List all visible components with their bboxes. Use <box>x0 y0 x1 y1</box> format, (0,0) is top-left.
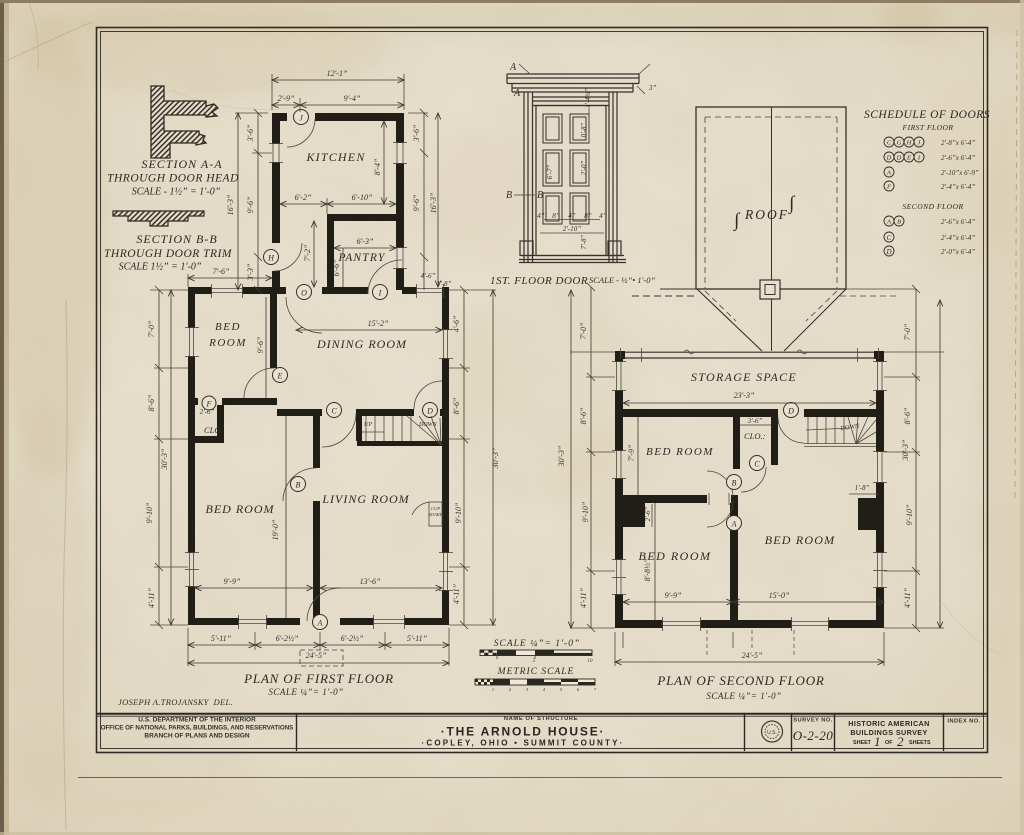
svg-text:A: A <box>317 619 323 628</box>
svg-text:4”: 4” <box>568 212 576 220</box>
svg-text:30'-3”: 30'-3” <box>160 448 169 470</box>
svg-text:1: 1 <box>874 734 881 749</box>
svg-text:A: A <box>731 520 737 529</box>
svg-text:6'-2½”: 6'-2½” <box>276 634 299 643</box>
svg-text:4”: 4” <box>599 212 607 220</box>
svg-text:2'-9”: 2'-9” <box>278 94 295 103</box>
svg-text:6'-2½”: 6'-2½” <box>341 634 364 643</box>
svg-text:6'-10”: 6'-10” <box>352 193 373 202</box>
svg-text:4'-6”: 4'-6” <box>452 315 461 332</box>
svg-text:3'-6”: 3'-6” <box>412 124 421 142</box>
svg-text:CLO.:: CLO.: <box>744 431 766 441</box>
svg-text:CUP: CUP <box>431 506 440 511</box>
svg-text:16'-3”: 16'-3” <box>429 192 438 213</box>
svg-text:2'-0”x 6'-4”: 2'-0”x 6'-4” <box>941 248 975 256</box>
svg-text:2'-4”x 6'-4”: 2'-4”x 6'-4” <box>941 183 975 191</box>
svg-text:2'-6”: 2'-6” <box>200 408 215 416</box>
svg-text:23'-3”: 23'-3” <box>734 391 755 400</box>
svg-text:2'-4”x 6'-4”: 2'-4”x 6'-4” <box>941 234 975 242</box>
svg-text:INDEX NO.: INDEX NO. <box>947 719 980 725</box>
svg-text:FIRST FLOOR: FIRST FLOOR <box>902 123 954 132</box>
svg-text:BED: BED <box>215 321 241 333</box>
svg-text:8”: 8” <box>584 212 592 220</box>
svg-text:C: C <box>887 140 892 147</box>
svg-text:THROUGH DOOR TRIM: THROUGH DOOR TRIM <box>104 248 233 260</box>
svg-text:C: C <box>331 407 337 416</box>
svg-text:8'-8½”: 8'-8½” <box>643 558 652 581</box>
svg-text:OF: OF <box>885 740 893 746</box>
svg-text:BUILDINGS SURVEY: BUILDINGS SURVEY <box>850 728 927 737</box>
svg-text:6'-6”: 6'-6” <box>332 259 341 276</box>
svg-text:SCALE ¼”= 1'-0”: SCALE ¼”= 1'-0” <box>268 687 343 697</box>
svg-text:9'-10”: 9'-10” <box>581 501 590 522</box>
svg-text:DINING ROOM: DINING ROOM <box>316 337 407 351</box>
svg-text:SCALE ¼”= 1'-0”: SCALE ¼”= 1'-0” <box>494 638 581 649</box>
svg-text:3'-3”: 3'-3” <box>246 263 255 281</box>
svg-text:·THE ARNOLD HOUSE·: ·THE ARNOLD HOUSE· <box>441 725 606 739</box>
svg-text:ROOM: ROOM <box>208 337 247 349</box>
svg-text:UP: UP <box>364 422 372 428</box>
svg-text:3”: 3” <box>648 84 657 92</box>
svg-text:D: D <box>886 155 892 162</box>
svg-text:J: J <box>299 114 303 123</box>
svg-text:B: B <box>732 479 737 488</box>
svg-text:A: A <box>509 62 517 73</box>
svg-text:STORAGE SPACE: STORAGE SPACE <box>691 370 797 384</box>
svg-text:U.S. DEPARTMENT OF THE INTERIO: U.S. DEPARTMENT OF THE INTERIOR <box>138 717 256 724</box>
svg-text:9'-10”: 9'-10” <box>145 502 154 523</box>
svg-text:·COPLEY, OHIO • SUMMIT COUNTY·: ·COPLEY, OHIO • SUMMIT COUNTY· <box>421 739 624 748</box>
svg-text:15'-2”: 15'-2” <box>368 319 389 328</box>
svg-text:4'-11”: 4'-11” <box>903 587 912 608</box>
svg-text:5'-11”: 5'-11” <box>407 634 428 643</box>
svg-text:7'-0”: 7'-0” <box>903 323 912 340</box>
svg-text:10: 10 <box>588 659 594 664</box>
svg-text:E: E <box>277 372 283 381</box>
svg-text:O-2-20: O-2-20 <box>793 728 834 743</box>
svg-text:8”: 8” <box>552 212 560 220</box>
svg-text:A: A <box>886 219 891 226</box>
svg-text:SCALE ¼”= 1'-0”: SCALE ¼”= 1'-0” <box>706 691 781 701</box>
svg-text:BED ROOM: BED ROOM <box>646 446 714 458</box>
svg-text:B: B <box>537 190 543 201</box>
svg-text:H: H <box>906 140 912 147</box>
svg-text:6'-3”: 6'-3” <box>357 237 374 246</box>
svg-text:19'-0”: 19'-0” <box>271 519 280 540</box>
svg-text:7'-6”: 7'-6” <box>213 267 230 276</box>
svg-text:O: O <box>301 289 307 298</box>
svg-text:JOSEPH A.TROJANSKY DEL.: JOSEPH A.TROJANSKY DEL. <box>118 697 233 707</box>
svg-text:D: D <box>896 155 902 162</box>
svg-text:METRIC SCALE: METRIC SCALE <box>497 667 575 677</box>
svg-text:9'-10”: 9'-10” <box>454 502 463 523</box>
svg-text:7'-2”: 7'-2” <box>303 244 312 261</box>
svg-text:ROOF: ROOF <box>744 207 789 222</box>
svg-text:PANTRY: PANTRY <box>337 252 385 264</box>
svg-text:8'-4”: 8'-4” <box>373 158 382 175</box>
svg-text:2'-10”x 6'-9”: 2'-10”x 6'-9” <box>941 169 979 177</box>
svg-text:4”: 4” <box>537 212 545 220</box>
svg-text:8'-6”: 8'-6” <box>147 394 156 411</box>
svg-text:E: E <box>906 155 911 162</box>
svg-text:2'-8”x 6'-4”: 2'-8”x 6'-4” <box>941 139 975 147</box>
svg-text:KITCHEN: KITCHEN <box>305 150 365 164</box>
svg-text:I: I <box>378 289 382 298</box>
svg-text:4'-11”: 4'-11” <box>579 587 588 608</box>
svg-text:OFFICE OF NATIONAL PARKS, BUIL: OFFICE OF NATIONAL PARKS, BUILDINGS, AND… <box>101 725 294 732</box>
svg-text:30'-3”: 30'-3” <box>557 445 566 467</box>
svg-text:D: D <box>787 407 794 416</box>
svg-text:4'-11”: 4'-11” <box>452 583 461 604</box>
svg-text:SHEETS: SHEETS <box>909 740 931 746</box>
svg-text:D: D <box>885 248 891 256</box>
svg-text:24'-5”: 24'-5” <box>306 651 327 660</box>
svg-text:U.S.: U.S. <box>767 730 777 736</box>
svg-text:2'-0”: 2'-0” <box>580 161 588 176</box>
svg-text:1'-8”: 1'-8” <box>855 484 870 492</box>
svg-text:3'-6”: 3'-6” <box>246 124 255 142</box>
svg-text:9'-6”: 9'-6” <box>412 194 421 211</box>
svg-text:7'-9”: 7'-9” <box>627 444 636 461</box>
svg-text:7'-0”: 7'-0” <box>147 320 156 337</box>
svg-text:9'-6”: 9'-6” <box>246 196 255 213</box>
svg-text:8'-6”: 8'-6” <box>903 407 912 424</box>
svg-text:7'-0”: 7'-0” <box>579 322 588 339</box>
svg-text:13'-6”: 13'-6” <box>360 577 381 586</box>
svg-text:2'-6”x 6'-4”: 2'-6”x 6'-4” <box>941 154 975 162</box>
svg-text:SHEET: SHEET <box>853 740 872 746</box>
svg-text:SECTION A-A: SECTION A-A <box>141 157 222 171</box>
svg-text:5'-11”: 5'-11” <box>211 634 232 643</box>
svg-text:9'-10”: 9'-10” <box>905 504 914 525</box>
svg-text:7'-8”: 7'-8” <box>580 235 588 250</box>
svg-text:6'-2”: 6'-2” <box>295 193 312 202</box>
svg-text:B: B <box>296 481 301 490</box>
svg-text:0'-8”: 0'-8” <box>580 123 588 138</box>
svg-text:C: C <box>887 234 892 242</box>
svg-text:LIVING ROOM: LIVING ROOM <box>321 492 409 506</box>
svg-text:4'-11”: 4'-11” <box>147 587 156 608</box>
svg-text:SURVEY NO.: SURVEY NO. <box>793 718 833 724</box>
svg-text:G: G <box>897 140 902 147</box>
svg-text:2: 2 <box>897 734 904 749</box>
svg-text:2'-6”x 6'-4”: 2'-6”x 6'-4” <box>941 218 975 226</box>
svg-text:16'-3”: 16'-3” <box>226 194 235 215</box>
svg-text:24'-5”: 24'-5” <box>742 651 763 660</box>
svg-text:B: B <box>506 190 512 201</box>
svg-text:9'-4”: 9'-4” <box>344 94 361 103</box>
svg-text:12'-1”: 12'-1” <box>327 69 348 78</box>
svg-text:8'-6”: 8'-6” <box>579 407 588 424</box>
svg-text:SECTION B-B: SECTION B-B <box>136 232 217 246</box>
svg-text:B: B <box>897 219 901 226</box>
svg-text:SCALE - 1½” = 1'-0”: SCALE - 1½” = 1'-0” <box>132 187 221 198</box>
svg-text:30'-3”: 30'-3” <box>491 447 500 469</box>
svg-text:3'-6”: 3'-6” <box>747 417 763 425</box>
svg-text:BRANCH OF PLANS AND DESIGN: BRANCH OF PLANS AND DESIGN <box>144 733 250 740</box>
svg-text:SCHEDULE OF DOORS: SCHEDULE OF DOORS <box>864 109 990 121</box>
svg-text:C: C <box>754 460 760 469</box>
svg-text:SCALE 1½” = 1'-0”: SCALE 1½” = 1'-0” <box>119 262 202 273</box>
svg-text:D: D <box>426 407 433 416</box>
svg-text:SECOND FLOOR: SECOND FLOOR <box>902 202 963 211</box>
svg-text:1'-8”: 1'-8” <box>437 280 452 288</box>
svg-text:1: 1 <box>492 687 494 692</box>
svg-text:6'-7”: 6'-7” <box>546 165 554 180</box>
svg-text:2'-6”: 2'-6” <box>644 507 652 522</box>
svg-text:DOWN: DOWN <box>418 422 438 428</box>
svg-text:THROUGH DOOR HEAD: THROUGH DOOR HEAD <box>107 173 239 185</box>
svg-text:PLAN OF FIRST FLOOR: PLAN OF FIRST FLOOR <box>243 671 394 686</box>
svg-text:SCALE - ½”• 1'-0”: SCALE - ½”• 1'-0” <box>589 275 655 285</box>
svg-text:A: A <box>513 88 521 99</box>
svg-text:1ST. FLOOR DOOR: 1ST. FLOOR DOOR <box>490 275 588 287</box>
svg-text:NAME OF STRUCTURE: NAME OF STRUCTURE <box>504 716 578 722</box>
svg-text:BED ROOM: BED ROOM <box>206 502 275 516</box>
svg-text:1'-4¾”: 1'-4¾” <box>584 88 592 108</box>
svg-text:2'-10”: 2'-10” <box>563 225 581 233</box>
svg-text:9'-9”: 9'-9” <box>665 591 682 600</box>
svg-text:BED ROOM: BED ROOM <box>765 533 836 547</box>
svg-text:PLAN OF SECOND FLOOR: PLAN OF SECOND FLOOR <box>656 673 824 688</box>
svg-text:8'-6”: 8'-6” <box>452 397 461 414</box>
svg-text:BOARD: BOARD <box>428 512 443 517</box>
svg-text:CLO.: CLO. <box>204 425 223 435</box>
svg-text:HISTORIC AMERICAN: HISTORIC AMERICAN <box>848 719 929 728</box>
svg-text:A: A <box>886 170 891 177</box>
svg-text:30'-3”: 30'-3” <box>901 439 910 461</box>
svg-text:15'-0”: 15'-0” <box>769 591 790 600</box>
svg-text:9'-9”: 9'-9” <box>224 577 241 586</box>
svg-text:9'-6”: 9'-6” <box>256 336 265 353</box>
svg-text:4'-6”: 4'-6” <box>421 272 436 280</box>
